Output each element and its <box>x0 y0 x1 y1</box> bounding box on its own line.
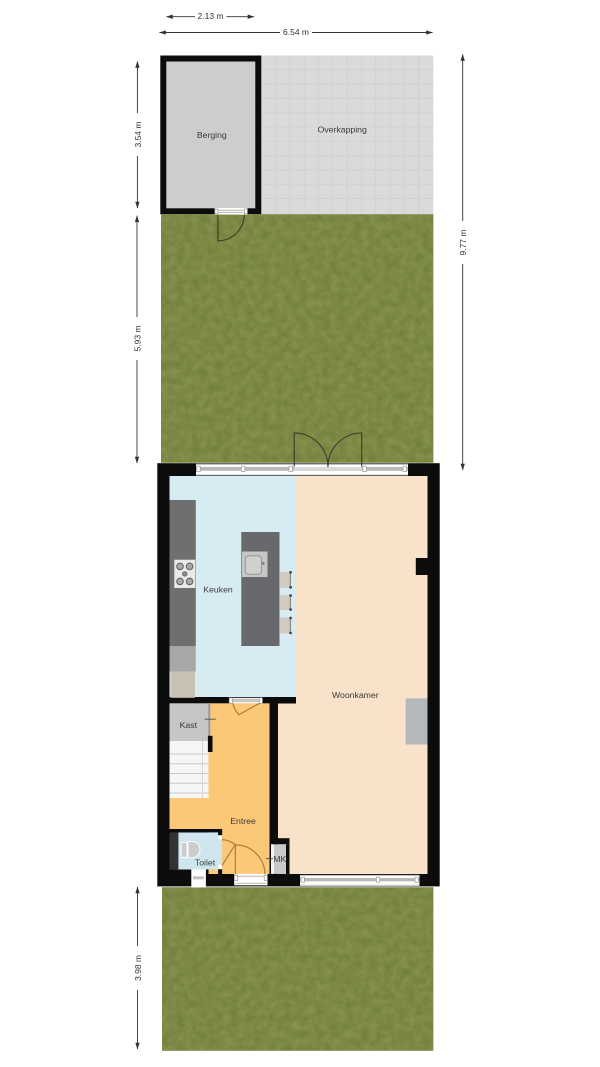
svg-text:6.54 m: 6.54 m <box>283 27 309 37</box>
svg-text:Kast: Kast <box>180 720 198 730</box>
svg-text:Woonkamer: Woonkamer <box>332 690 379 700</box>
svg-text:Keuken: Keuken <box>203 584 233 594</box>
svg-text:3.54 m: 3.54 m <box>133 122 143 148</box>
svg-text:2.13 m: 2.13 m <box>198 11 224 21</box>
svg-text:Entree: Entree <box>230 816 256 826</box>
svg-text:MK: MK <box>273 854 286 864</box>
svg-text:5.93 m: 5.93 m <box>133 326 143 352</box>
svg-text:9.77 m: 9.77 m <box>458 230 468 256</box>
svg-text:3.98 m: 3.98 m <box>133 955 143 981</box>
svg-text:Berging: Berging <box>197 130 227 140</box>
svg-text:Toilet: Toilet <box>195 857 216 867</box>
svg-text:Overkapping: Overkapping <box>318 124 367 134</box>
